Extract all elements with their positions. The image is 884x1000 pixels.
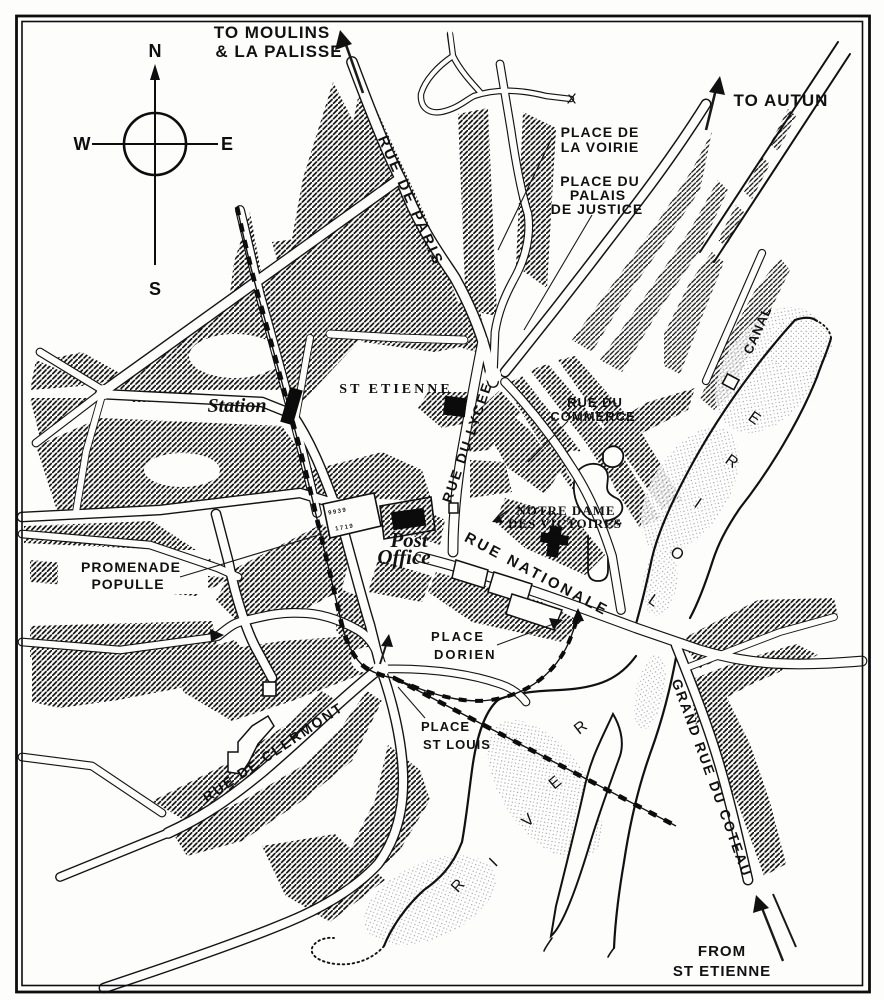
svg-text:Office: Office <box>377 545 430 569</box>
svg-text:PROMENADE: PROMENADE <box>81 559 181 575</box>
svg-text:ST ETIENNE: ST ETIENNE <box>339 382 452 397</box>
svg-text:Station: Station <box>208 395 267 417</box>
svg-text:FROM: FROM <box>698 943 746 960</box>
svg-text:PLACE: PLACE <box>421 719 470 734</box>
svg-text:S: S <box>149 279 161 299</box>
svg-text:RUE DU: RUE DU <box>567 395 623 410</box>
svg-text:ST ETIENNE: ST ETIENNE <box>673 963 771 980</box>
svg-text:& LA PALISSE: & LA PALISSE <box>215 42 342 61</box>
svg-text:TO MOULINS: TO MOULINS <box>214 23 330 42</box>
svg-text:PLACE DE: PLACE DE <box>561 124 640 140</box>
svg-text:W: W <box>74 134 91 154</box>
svg-text:PLACE: PLACE <box>431 629 485 644</box>
svg-text:COMMERCE: COMMERCE <box>550 409 635 424</box>
svg-text:DORIEN: DORIEN <box>434 647 497 662</box>
svg-text:DE JUSTICE: DE JUSTICE <box>551 201 643 217</box>
svg-text:POPULLE: POPULLE <box>91 576 164 592</box>
svg-text:E: E <box>221 134 233 154</box>
svg-text:DES VICTOIRES: DES VICTOIRES <box>508 516 622 531</box>
svg-text:ST LOUIS: ST LOUIS <box>423 737 491 752</box>
svg-text:TO AUTUN: TO AUTUN <box>734 91 829 110</box>
svg-text:N: N <box>149 41 162 61</box>
svg-text:LA VOIRIE: LA VOIRIE <box>561 139 640 155</box>
